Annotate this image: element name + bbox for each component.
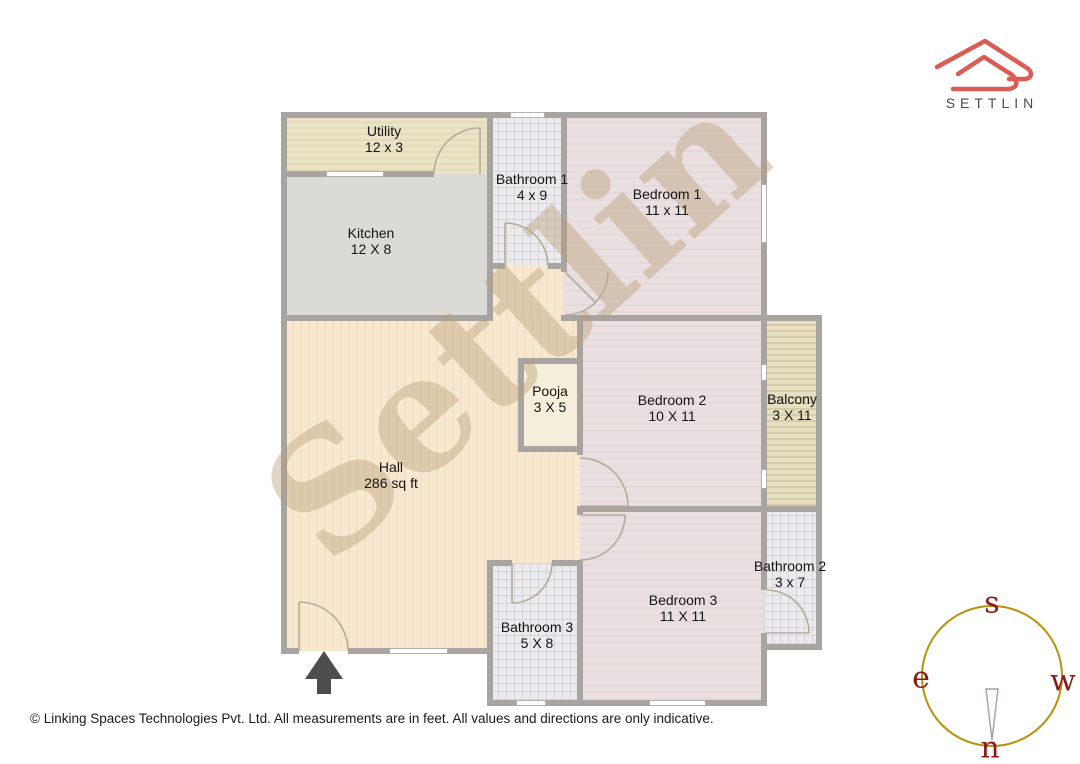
compass-circle [921,605,1063,747]
room-label-kitchen: Kitchen 12 X 8 [348,225,395,257]
room-dims: 12 X 8 [348,241,395,257]
room-dims: 10 X 11 [638,408,706,424]
room-name: Bathroom 3 [501,619,573,635]
room-name: Bedroom 2 [638,392,706,408]
room-dims: 4 x 9 [496,187,568,203]
compass-north: n [980,731,999,764]
room-dims: 3 X 5 [532,399,568,415]
floor-plan-page: Settlin Utility 12 x 3 Kitchen 12 X 8 Ba… [0,0,1080,764]
compass-west: w [1050,664,1076,699]
room-label-balcony: Balcony 3 X 11 [767,391,817,423]
room-label-bathroom-1: Bathroom 1 4 x 9 [496,171,568,203]
room-name: Utility [365,123,403,139]
room-name: Hall [364,459,418,475]
room-name: Balcony [767,391,817,407]
room-dims: 11 x 11 [633,202,701,218]
room-label-utility: Utility 12 x 3 [365,123,403,155]
logo-outer-roof [937,41,1031,79]
room-dims: 11 X 11 [649,608,717,624]
room-name: Bathroom 1 [496,171,568,187]
copyright-text: © Linking Spaces Technologies Pvt. Ltd. … [30,711,714,726]
room-name: Bedroom 3 [649,592,717,608]
room-dims: 3 X 11 [767,407,817,423]
room-dims: 12 x 3 [365,139,403,155]
room-name: Kitchen [348,225,395,241]
room-dims: 286 sq ft [364,475,418,491]
brand-name: SETTLIN [925,95,1059,111]
room-name: Pooja [532,383,568,399]
compass-east: e [912,661,930,696]
compass-south: s [984,586,999,621]
room-label-hall: Hall 286 sq ft [364,459,418,491]
room-name: Bedroom 1 [633,186,701,202]
room-label-bedroom-3: Bedroom 3 11 X 11 [649,592,717,624]
room-dims: 5 X 8 [501,635,573,651]
room-dims: 3 x 7 [754,574,826,590]
room-labels-layer: Utility 12 x 3 Kitchen 12 X 8 Bathroom 1… [0,0,1080,764]
room-label-bedroom-1: Bedroom 1 11 x 11 [633,186,701,218]
logo-inner-roof [953,57,1016,89]
room-label-bathroom-3: Bathroom 3 5 X 8 [501,619,573,651]
room-label-bedroom-2: Bedroom 2 10 X 11 [638,392,706,424]
room-name: Bathroom 2 [754,558,826,574]
room-label-bathroom-2: Bathroom 2 3 x 7 [754,558,826,590]
room-label-pooja: Pooja 3 X 5 [532,383,568,415]
